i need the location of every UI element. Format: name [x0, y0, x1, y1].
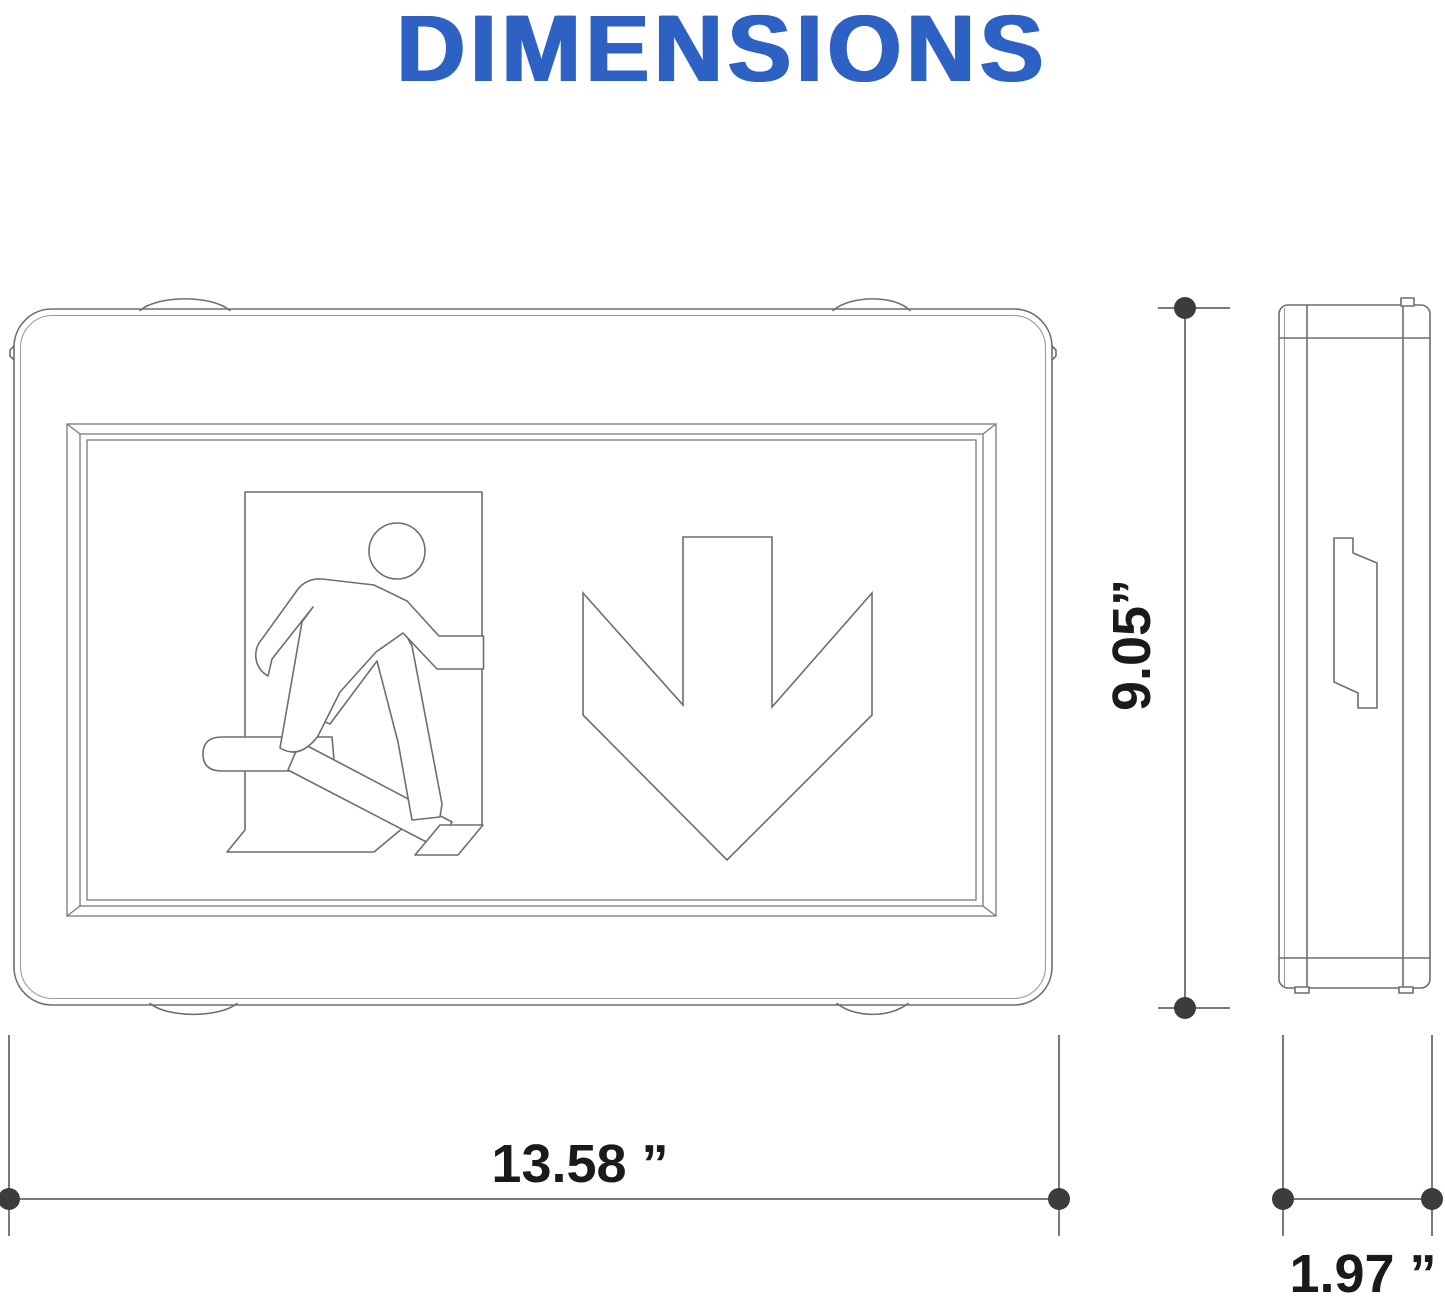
running-man-exit-icon	[203, 492, 484, 855]
head	[369, 523, 425, 579]
height-dimension: 9.05”	[1102, 297, 1230, 1019]
side-top-tab	[1401, 298, 1414, 306]
width-endpoint-dot-left	[0, 1188, 20, 1210]
depth-endpoint-dot-right	[1421, 1188, 1443, 1210]
down-arrow-icon	[583, 537, 872, 860]
height-dimension-label: 9.05”	[1102, 579, 1162, 711]
depth-dimension-label: 1.97 ”	[1289, 1244, 1436, 1299]
depth-endpoint-dot-left	[1272, 1188, 1294, 1210]
width-dimension: 13.58 ”	[0, 1035, 1070, 1236]
height-endpoint-dot-top	[1174, 297, 1196, 319]
depth-extension-lines	[1283, 1035, 1432, 1236]
product-dimensions-diagram: DIMENSIONS	[0, 0, 1445, 1299]
height-extension-lines	[1158, 308, 1230, 1008]
height-endpoint-dot-bottom	[1174, 997, 1196, 1019]
exit-sign-front-view	[10, 299, 1056, 1015]
sign-inner-shell-line	[21, 316, 1046, 999]
depth-dimension: 1.97 ”	[1272, 1035, 1443, 1299]
width-dimension-label: 13.58 ”	[491, 1134, 668, 1194]
side-mount-latch	[1334, 538, 1377, 708]
side-foot-left	[1295, 987, 1309, 993]
dimensions-drawing: 13.58 ” 9.05” 1.97 ”	[0, 0, 1445, 1299]
side-foot-right	[1399, 987, 1413, 993]
exit-sign-side-view	[1279, 298, 1430, 993]
width-endpoint-dot-right	[1048, 1188, 1070, 1210]
